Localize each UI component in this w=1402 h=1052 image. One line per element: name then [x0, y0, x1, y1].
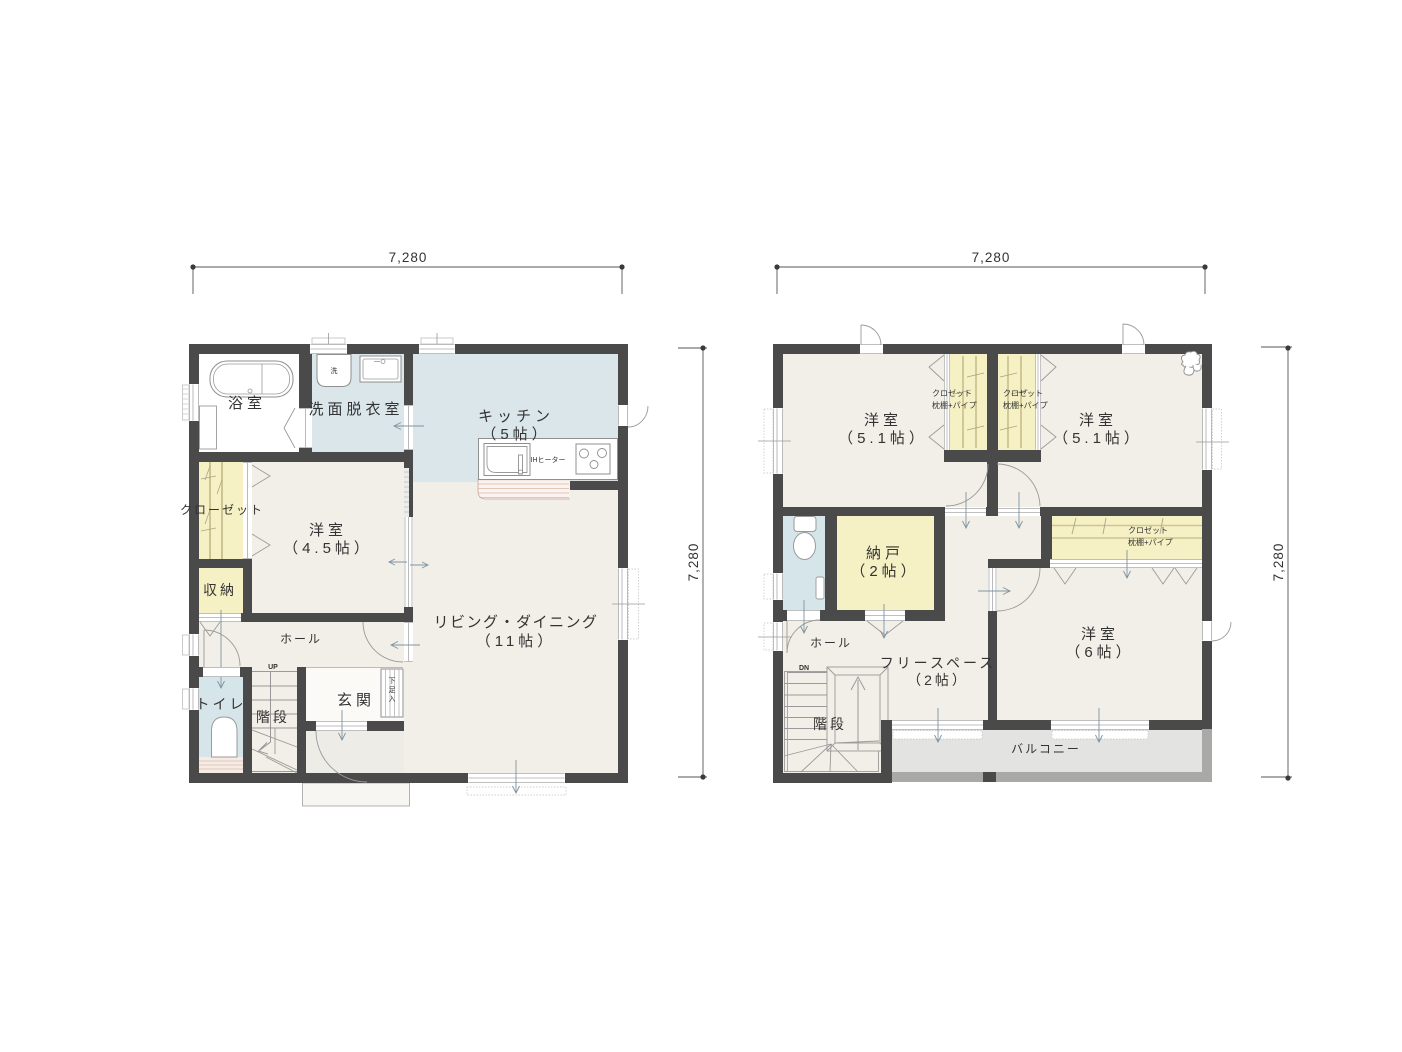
- svg-text:（4.5帖）: （4.5帖）: [283, 540, 373, 557]
- svg-text:クローゼット: クローゼット: [180, 503, 264, 517]
- svg-text:7,280: 7,280: [686, 543, 701, 582]
- svg-text:（5.1帖）: （5.1帖）: [1053, 430, 1143, 447]
- svg-text:階段: 階段: [256, 709, 290, 725]
- svg-text:IHヒーター: IHヒーター: [531, 455, 566, 464]
- svg-text:DN: DN: [799, 665, 809, 672]
- svg-text:枕棚+パイプ: 枕棚+パイプ: [932, 400, 977, 410]
- svg-text:足: 足: [389, 686, 396, 694]
- svg-text:7,280: 7,280: [972, 250, 1011, 265]
- svg-text:収納: 収納: [203, 582, 237, 598]
- svg-text:洗面脱衣室: 洗面脱衣室: [308, 401, 403, 418]
- svg-text:UP: UP: [268, 664, 278, 671]
- svg-text:洋室: 洋室: [864, 412, 902, 429]
- svg-text:納戸: 納戸: [866, 545, 904, 562]
- svg-text:浴室: 浴室: [228, 395, 266, 412]
- svg-text:下: 下: [389, 677, 396, 685]
- svg-text:ホール: ホール: [810, 636, 852, 650]
- svg-text:7,280: 7,280: [389, 250, 428, 265]
- svg-text:クロゼット: クロゼット: [1128, 525, 1168, 535]
- svg-text:クロゼット: クロゼット: [1003, 388, 1043, 398]
- svg-text:（2帖）: （2帖）: [907, 672, 969, 688]
- svg-text:トイレ: トイレ: [196, 696, 247, 712]
- svg-text:（5.1帖）: （5.1帖）: [838, 430, 928, 447]
- svg-text:（6帖）: （6帖）: [1065, 644, 1134, 661]
- svg-text:洗: 洗: [331, 366, 338, 375]
- svg-text:クロゼット: クロゼット: [932, 388, 972, 398]
- svg-text:フリースペース: フリースペース: [880, 655, 997, 671]
- svg-text:洋室: 洋室: [1081, 626, 1119, 643]
- svg-text:リビング・ダイニング: リビング・ダイニング: [433, 614, 598, 631]
- svg-text:キッチン: キッチン: [478, 408, 554, 425]
- svg-text:ホール: ホール: [280, 632, 322, 646]
- svg-text:枕棚+パイプ: 枕棚+パイプ: [1128, 537, 1173, 547]
- svg-text:バルコニー: バルコニー: [1011, 742, 1081, 756]
- svg-text:枕棚+パイプ: 枕棚+パイプ: [1003, 400, 1048, 410]
- svg-text:洋室: 洋室: [1079, 412, 1117, 429]
- svg-text:（2帖）: （2帖）: [850, 563, 919, 580]
- svg-text:洋室: 洋室: [309, 522, 347, 539]
- svg-text:階段: 階段: [813, 716, 847, 732]
- svg-text:（11帖）: （11帖）: [476, 633, 557, 650]
- svg-text:玄関: 玄関: [337, 692, 375, 709]
- svg-text:入: 入: [389, 695, 396, 703]
- svg-text:（5帖）: （5帖）: [481, 426, 550, 443]
- svg-text:7,280: 7,280: [1271, 543, 1286, 582]
